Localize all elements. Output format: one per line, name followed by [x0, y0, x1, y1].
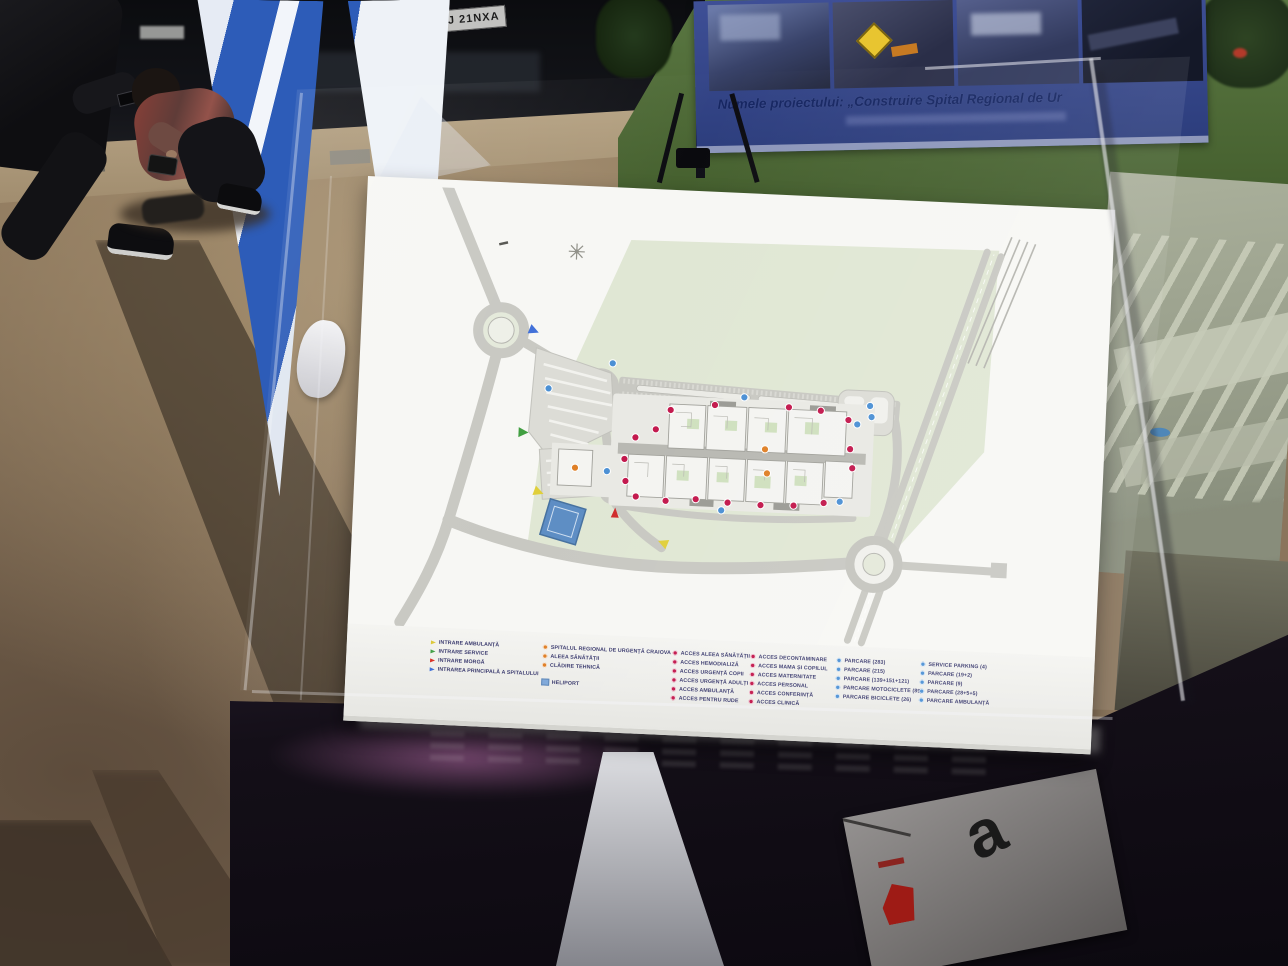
orange-circle-icon [543, 644, 548, 649]
red-circle-icon [748, 699, 753, 704]
blue-circle-icon [920, 671, 925, 676]
orange-circle-icon [542, 653, 547, 658]
red-circle-icon [750, 663, 755, 668]
red-circle-icon [750, 654, 755, 659]
red-circle-icon [750, 672, 755, 677]
blue-circle-icon [835, 685, 840, 690]
tree-center [596, 0, 672, 78]
legend-col-access-a: ACCES ALEEA SĂNĂTĂȚII ACCES HEMODIALIZĂ … [670, 648, 750, 705]
yellow-arrow-icon [431, 640, 436, 644]
red-circle-icon [673, 650, 678, 655]
paper-letter: a [954, 795, 1015, 870]
tree-right [1196, 0, 1288, 88]
photo-scene: GJ 21NXA Numele proiectului: „Constru [0, 0, 1288, 966]
blue-circle-icon [836, 667, 841, 672]
legend-col-parking-b: SERVICE PARKING (4) PARCARE (19+2) PARCA… [919, 660, 992, 708]
legend-col-parking-a: PARCARE (283) PARCARE (215) PARCARE (139… [835, 656, 924, 705]
site-plan [347, 184, 1114, 662]
red-circle-icon [749, 681, 754, 686]
green-arrow-icon [430, 649, 435, 653]
red-logo [878, 880, 919, 926]
red-circle-icon [671, 695, 676, 700]
blue-circle-icon [919, 680, 924, 685]
blue-circle-icon [919, 689, 924, 694]
person-crouching [120, 60, 300, 240]
banner-photo-render [708, 3, 830, 92]
blue-circle-icon [836, 676, 841, 681]
legend-item: HELIPORT [541, 677, 670, 692]
legend-col-access-b: ACCES DECONTAMINARE ACCES MAMA ȘI COPILU… [748, 652, 828, 709]
banner-photo-hospital [956, 0, 1078, 86]
heliport-square-icon [541, 678, 549, 686]
legend-col-entrances: INTRARE AMBULANȚĂ INTRARE SERVICE INTRAR… [430, 637, 541, 678]
orange-circle-icon [542, 662, 547, 667]
red-arrow-icon [430, 658, 435, 662]
project-banner: Numele proiectului: „Construire Spital R… [693, 0, 1208, 153]
diamond-sign [855, 22, 892, 59]
banner-title: Numele proiectului: „Construire Spital R… [717, 90, 1062, 112]
red-circle-icon [671, 677, 676, 682]
legend-col-places: SPITALUL REGIONAL DE URGENȚĂ CRAIOVA ALE… [541, 642, 671, 692]
blue-arrow-icon [430, 667, 435, 671]
red-circle-icon [749, 690, 754, 695]
blue-circle-icon [836, 658, 841, 663]
banner-subtitle-blurred [846, 112, 1066, 126]
tripod-head [676, 148, 710, 168]
legend-item: PARCARE AMBULANȚĂ [919, 696, 990, 708]
site-plan-board: INTRARE AMBULANȚĂ INTRARE SERVICE INTRAR… [343, 176, 1115, 754]
blue-circle-icon [919, 698, 924, 703]
banner-photo-roadsign [832, 0, 954, 88]
red-circle-icon [671, 686, 676, 691]
flower-patch [1233, 48, 1247, 58]
blue-circle-icon [835, 694, 840, 699]
red-circle-icon [672, 668, 677, 673]
concrete-block [330, 149, 371, 165]
blue-circle-icon [920, 662, 925, 667]
red-circle-icon [672, 659, 677, 664]
